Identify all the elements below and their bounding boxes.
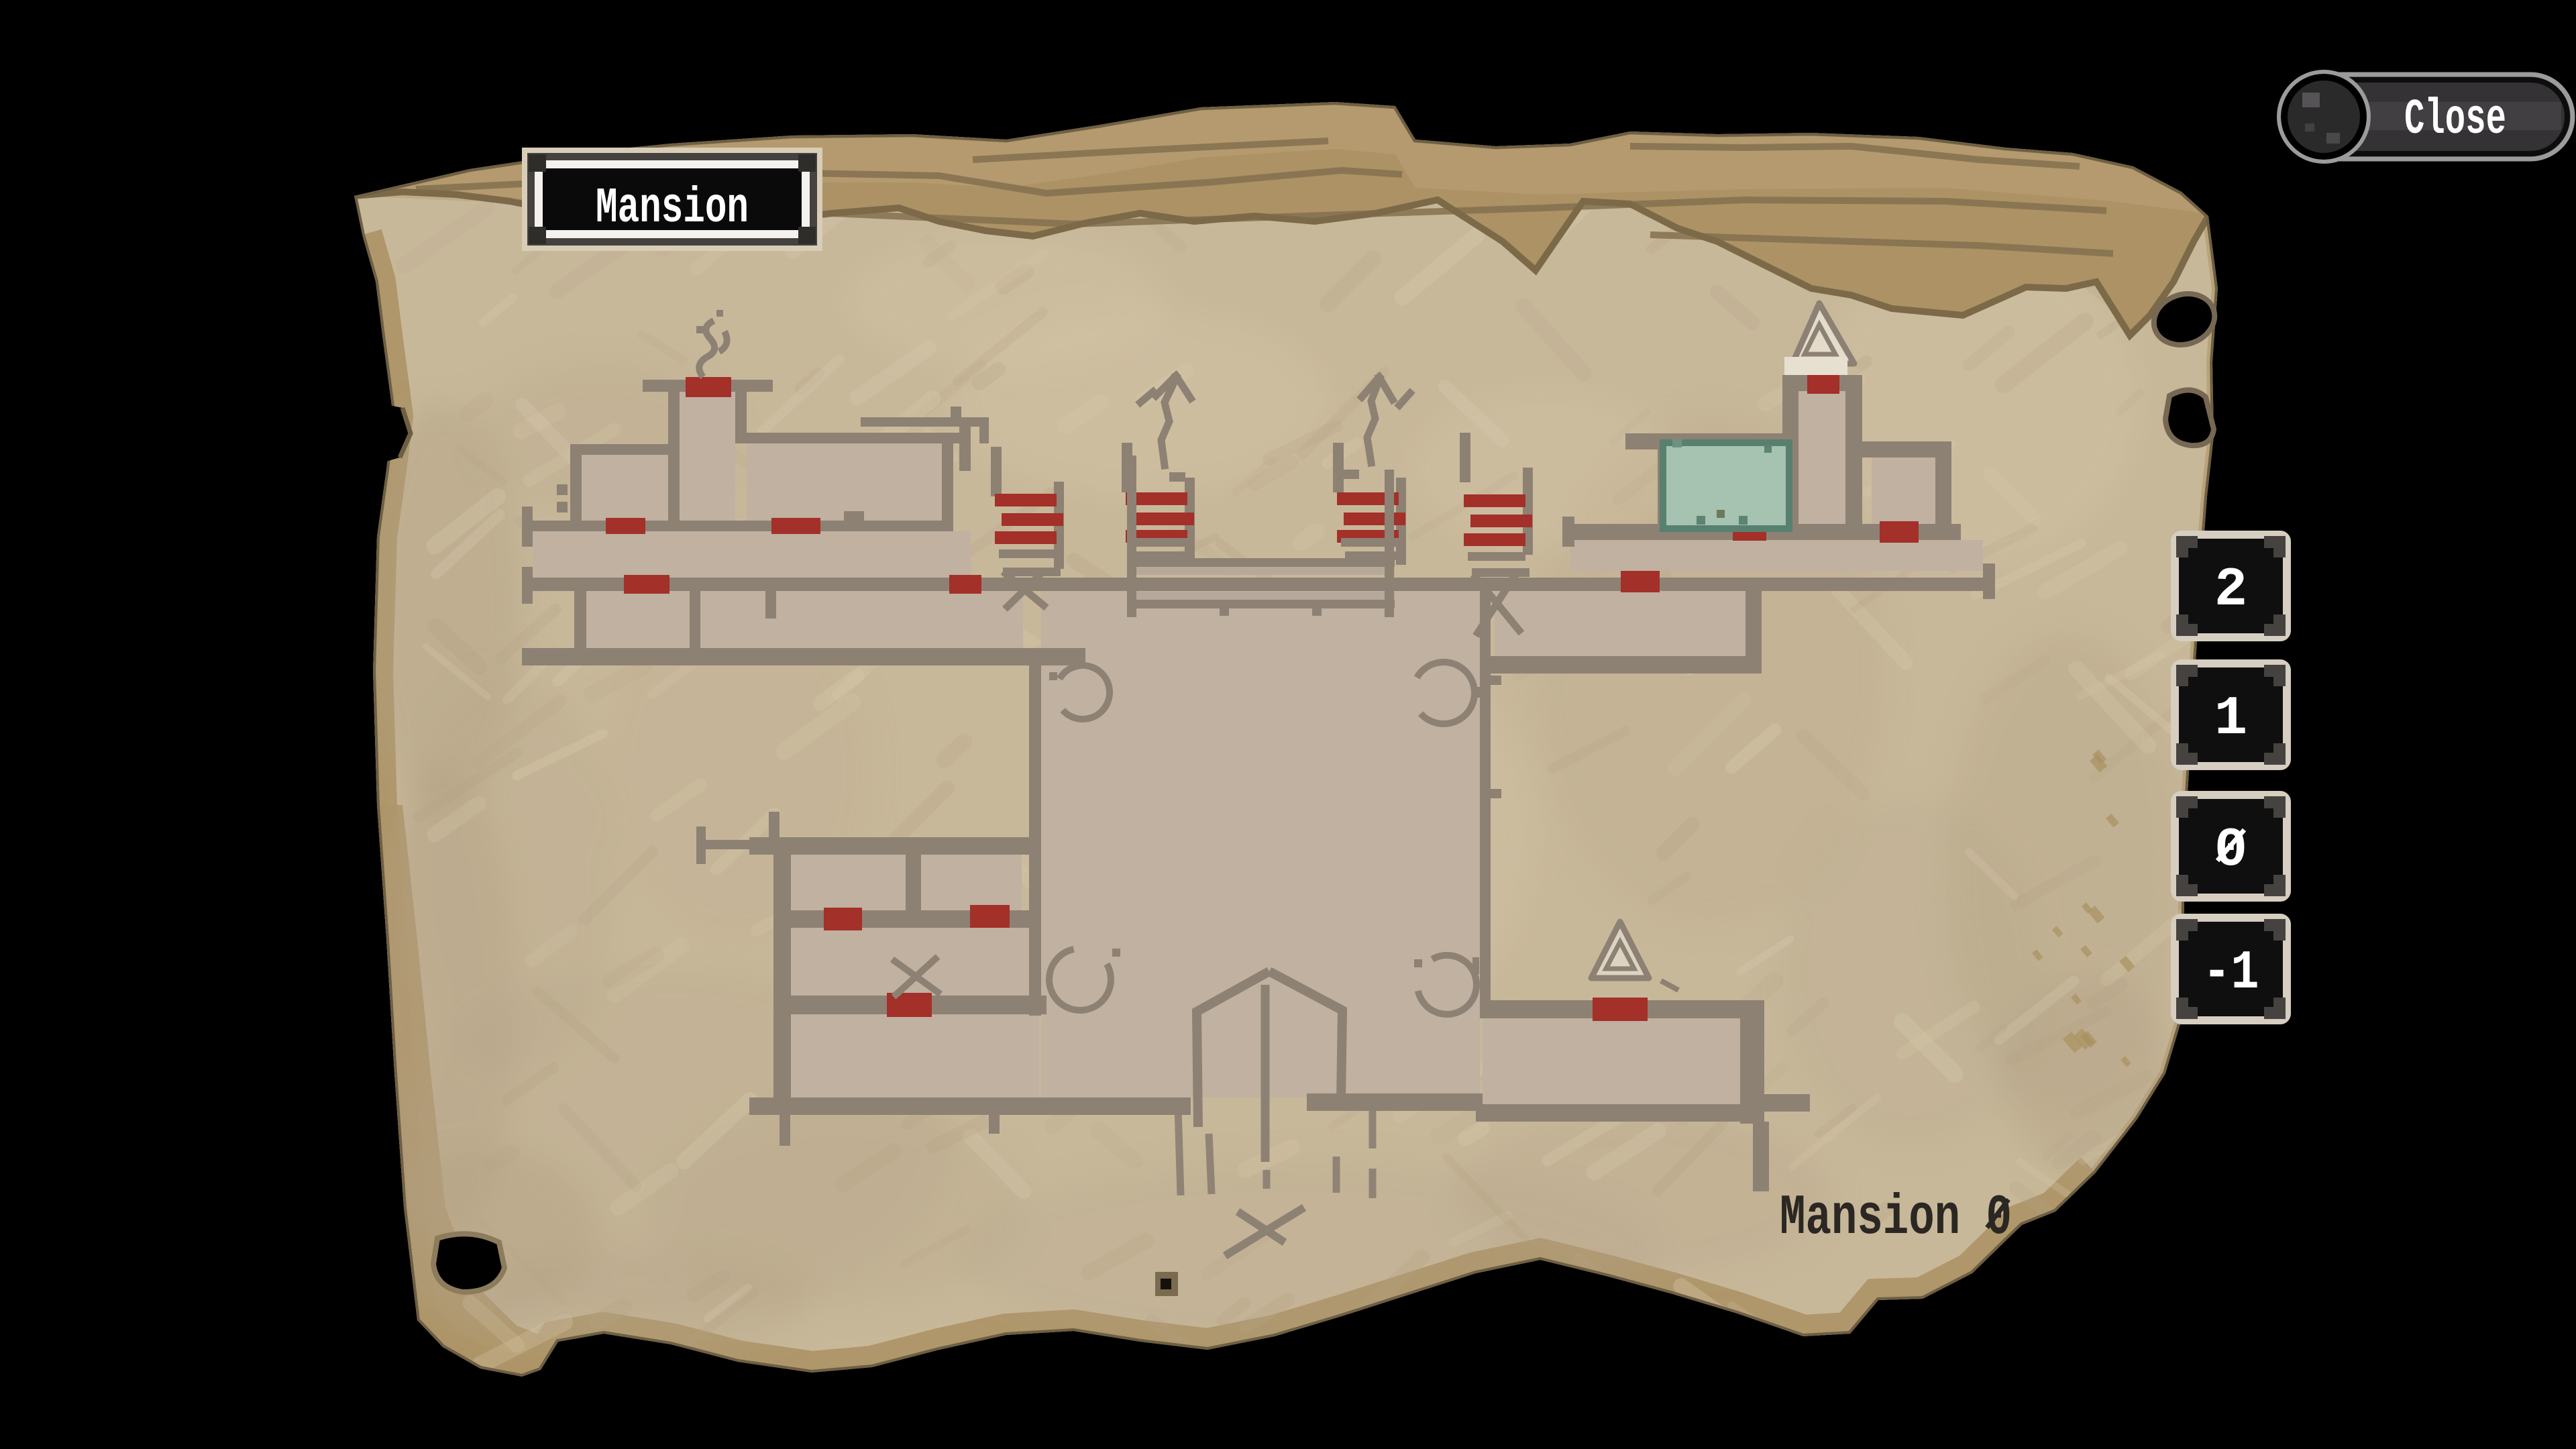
svg-text:1: 1	[2214, 688, 2247, 750]
svg-text:2: 2	[2214, 559, 2247, 621]
svg-text:-1: -1	[2203, 942, 2259, 1004]
svg-text:Mansion 0: Mansion 0	[1780, 1187, 2012, 1250]
svg-text:Close: Close	[2404, 92, 2506, 148]
svg-text:Mansion: Mansion	[596, 180, 749, 237]
